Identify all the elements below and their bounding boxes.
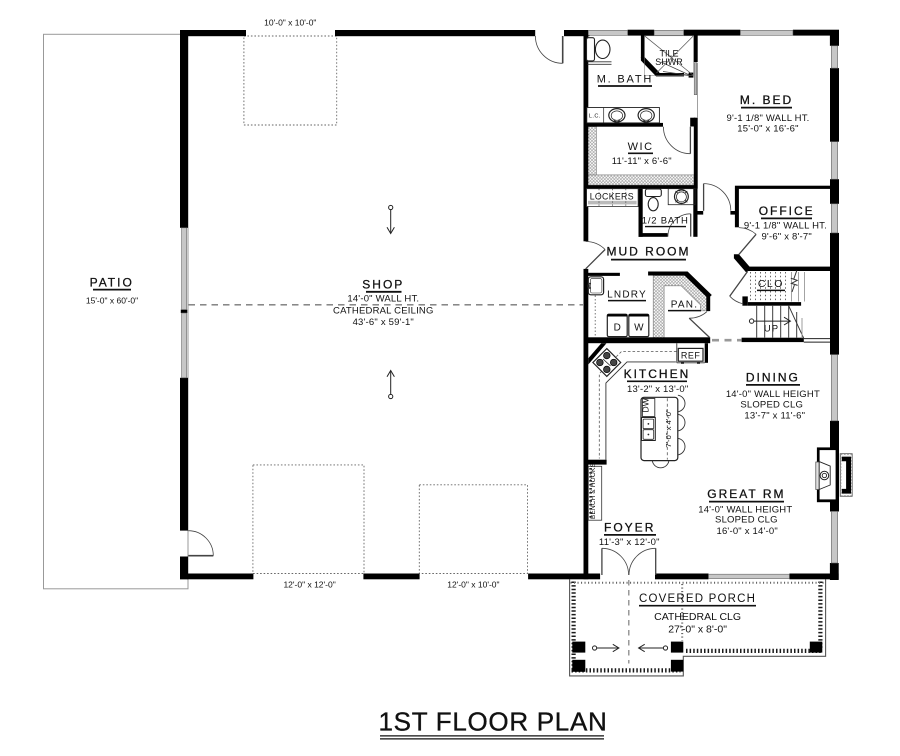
- svg-text:PATIO: PATIO: [90, 276, 134, 290]
- svg-text:SHOP: SHOP: [362, 278, 404, 292]
- svg-text:W: W: [634, 323, 644, 334]
- svg-text:10'-0" x 10'-0": 10'-0" x 10'-0": [264, 18, 316, 28]
- svg-text:13'-7" x 11'-6": 13'-7" x 11'-6": [744, 411, 805, 422]
- svg-text:M. BATH: M. BATH: [597, 74, 653, 86]
- svg-text:12'-0" x 10'-0": 12'-0" x 10'-0": [447, 580, 499, 590]
- svg-text:M. BED: M. BED: [740, 93, 793, 107]
- svg-text:11'-11" x 6'-6": 11'-11" x 6'-6": [612, 156, 672, 167]
- svg-text:OFFICE: OFFICE: [759, 204, 815, 218]
- svg-text:DW: DW: [641, 397, 651, 412]
- svg-text:MUD ROOM: MUD ROOM: [607, 245, 691, 259]
- svg-text:CATHEDRAL CLG: CATHEDRAL CLG: [654, 611, 741, 623]
- svg-text:1ST FLOOR PLAN: 1ST FLOOR PLAN: [379, 707, 608, 737]
- svg-text:7'-0" x 4'-0": 7'-0" x 4'-0": [664, 409, 673, 448]
- svg-text:COVERED PORCH: COVERED PORCH: [639, 593, 756, 605]
- svg-text:L.C.: L.C.: [589, 113, 601, 119]
- svg-text:9'-1 1/8" WALL HT.: 9'-1 1/8" WALL HT.: [744, 220, 827, 231]
- svg-text:KITCHEN: KITCHEN: [624, 367, 691, 381]
- svg-text:WIC: WIC: [628, 141, 654, 153]
- svg-text:BENCH & HOOKS: BENCH & HOOKS: [590, 463, 597, 519]
- svg-text:15'-0" x 16'-6": 15'-0" x 16'-6": [737, 123, 798, 134]
- svg-text:CLO: CLO: [758, 278, 784, 290]
- svg-text:GREAT RM: GREAT RM: [707, 487, 785, 501]
- svg-text:13'-2" x 13'-0": 13'-2" x 13'-0": [627, 384, 688, 395]
- svg-text:27'-0" x 8'-0": 27'-0" x 8'-0": [668, 623, 727, 635]
- svg-text:1/2 BATH: 1/2 BATH: [642, 216, 689, 227]
- svg-text:SLOPED CLG: SLOPED CLG: [715, 514, 778, 525]
- svg-text:LNDRY: LNDRY: [607, 289, 647, 300]
- svg-text:REF: REF: [681, 350, 701, 360]
- svg-text:LOCKERS: LOCKERS: [590, 191, 634, 201]
- svg-text:DINING: DINING: [746, 371, 800, 385]
- svg-text:SLOPED CLG: SLOPED CLG: [740, 400, 803, 411]
- svg-text:43'-6" x 59'-1": 43'-6" x 59'-1": [353, 317, 414, 328]
- svg-text:12'-0" x 12'-0": 12'-0" x 12'-0": [283, 580, 335, 590]
- svg-text:FOYER: FOYER: [604, 521, 655, 535]
- svg-text:CATHEDRAL CEILING: CATHEDRAL CEILING: [333, 305, 434, 316]
- svg-text:SHWR: SHWR: [655, 57, 683, 67]
- svg-text:UP: UP: [764, 324, 779, 335]
- svg-text:D: D: [614, 323, 621, 334]
- svg-text:11'-3" x 12'-0": 11'-3" x 12'-0": [599, 537, 660, 548]
- svg-text:PAN.: PAN.: [671, 299, 698, 310]
- svg-text:15'-0" x 60'-0": 15'-0" x 60'-0": [86, 296, 138, 306]
- svg-text:16'-0" x 14'-0": 16'-0" x 14'-0": [716, 526, 777, 537]
- svg-text:14'-0" WALL HEIGHT: 14'-0" WALL HEIGHT: [726, 389, 820, 400]
- svg-text:14'-0" WALL HT.: 14'-0" WALL HT.: [347, 294, 419, 305]
- svg-text:9'-6" x 8'-7": 9'-6" x 8'-7": [761, 231, 811, 242]
